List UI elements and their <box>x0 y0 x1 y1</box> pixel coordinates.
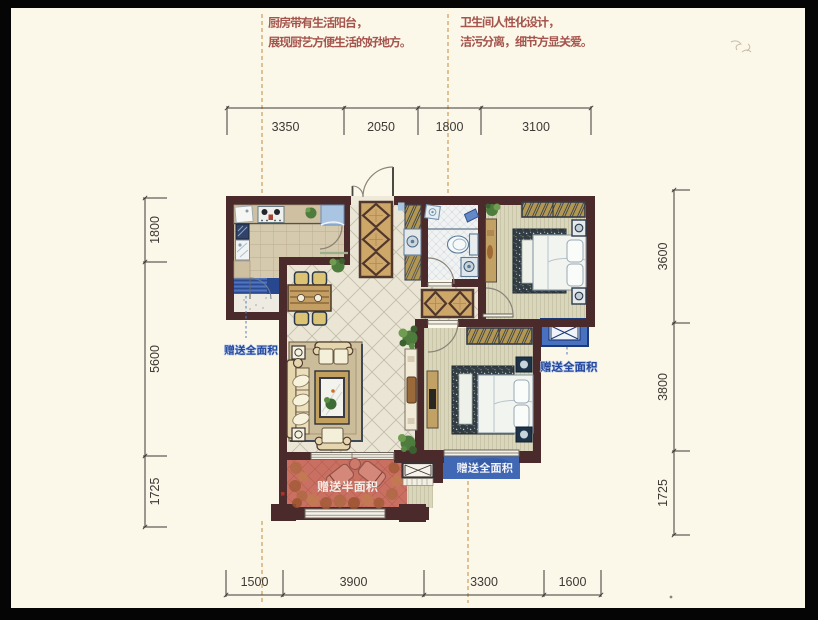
svg-text:1725: 1725 <box>148 478 162 506</box>
svg-text:3900: 3900 <box>340 575 368 589</box>
svg-text:5600: 5600 <box>148 345 162 373</box>
svg-text:1800: 1800 <box>148 216 162 244</box>
svg-text:1725: 1725 <box>656 479 670 507</box>
svg-text:1500: 1500 <box>241 575 269 589</box>
svg-text:3800: 3800 <box>656 373 670 401</box>
svg-text:3100: 3100 <box>522 120 550 134</box>
svg-text:1800: 1800 <box>436 120 464 134</box>
svg-text:1600: 1600 <box>559 575 587 589</box>
svg-text:2050: 2050 <box>367 120 395 134</box>
svg-text:3350: 3350 <box>272 120 300 134</box>
svg-text:3600: 3600 <box>656 243 670 271</box>
svg-text:3300: 3300 <box>470 575 498 589</box>
